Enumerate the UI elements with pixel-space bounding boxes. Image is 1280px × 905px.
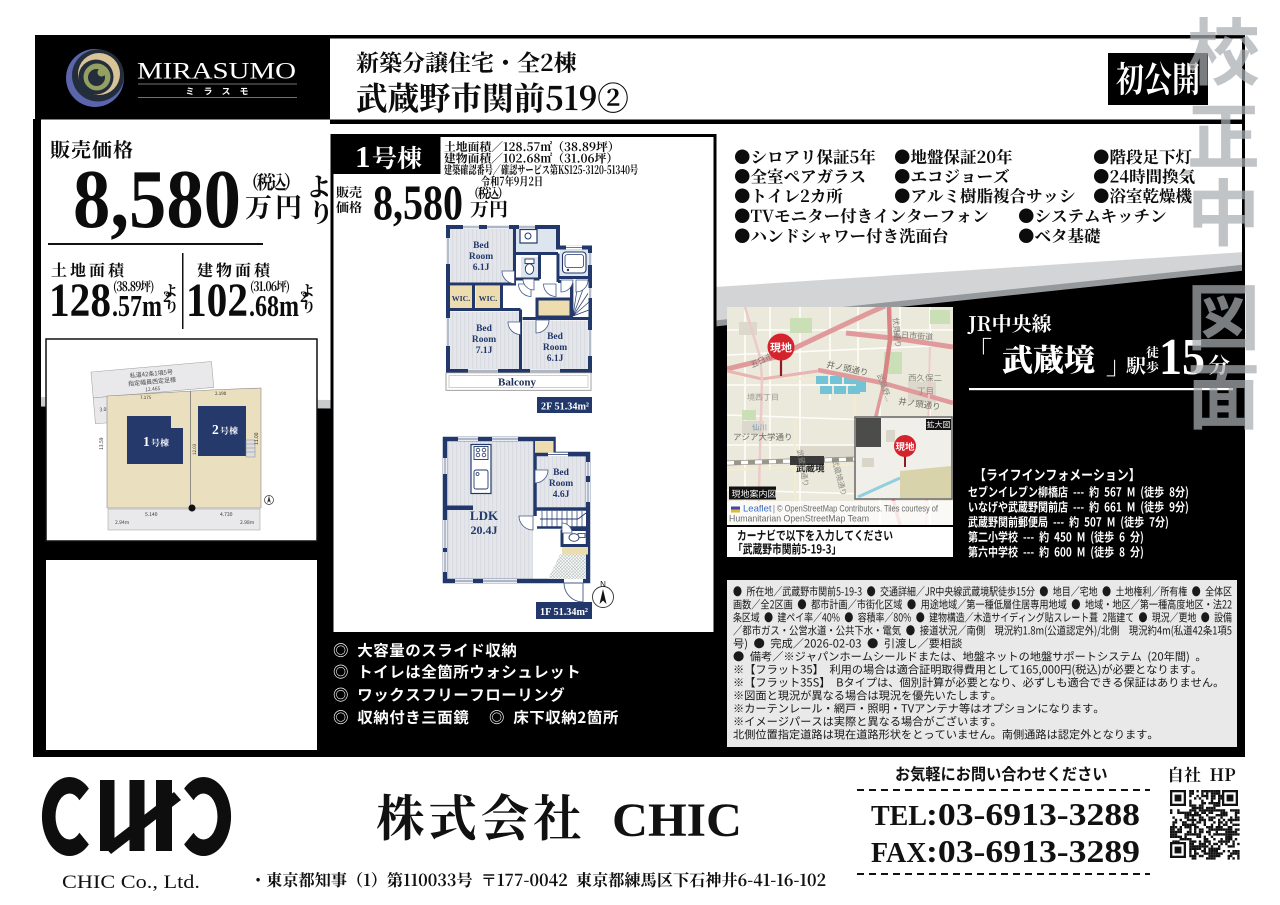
svg-text:Bed: Bed [473, 241, 490, 251]
svg-text:102: 102 [186, 274, 248, 327]
svg-text:8,580: 8,580 [373, 174, 463, 230]
svg-text:Room: Room [469, 252, 493, 262]
svg-text:20.4J: 20.4J [471, 523, 498, 537]
svg-text:WIC.: WIC. [452, 294, 470, 303]
svg-text:LDK: LDK [470, 508, 499, 523]
svg-text:Balcony: Balcony [498, 377, 536, 389]
svg-text:Room: Room [543, 343, 567, 353]
svg-text:Bed: Bed [476, 324, 493, 334]
svg-text:Bed: Bed [553, 468, 570, 478]
svg-text:Humanitarian OpenStreetMap Tea: Humanitarian OpenStreetMap Team [729, 514, 869, 525]
svg-text:Room: Room [549, 479, 573, 489]
svg-text:CHIC: CHIC [612, 794, 742, 847]
svg-text:N: N [600, 580, 606, 589]
svg-text:7.1J: 7.1J [476, 346, 493, 356]
svg-text:8,580: 8,580 [73, 153, 241, 246]
svg-text:1: 1 [355, 139, 371, 174]
svg-text:1F 51.34m²: 1F 51.34m² [540, 606, 589, 618]
svg-text::03-6913-3289: :03-6913-3289 [926, 833, 1140, 869]
svg-text:1: 1 [143, 434, 150, 449]
svg-text:.57m: .57m [112, 288, 162, 323]
svg-text:WIC.: WIC. [479, 294, 497, 303]
svg-text:2F 51.34m²: 2F 51.34m² [541, 401, 590, 413]
svg-text:128: 128 [49, 274, 111, 327]
svg-text:CHIC Co., Ltd.: CHIC Co., Ltd. [62, 872, 200, 893]
svg-text:6.1J: 6.1J [547, 354, 564, 364]
svg-text:.68m: .68m [249, 288, 299, 323]
svg-text:TEL: TEL [871, 801, 927, 832]
svg-text:FAX: FAX [871, 838, 926, 869]
svg-text:MIRASUMO: MIRASUMO [137, 59, 296, 85]
svg-text:Bed: Bed [547, 332, 564, 342]
svg-text:4.6J: 4.6J [553, 490, 570, 500]
svg-text:2: 2 [300, 289, 308, 306]
svg-text::03-6913-3288: :03-6913-3288 [926, 796, 1140, 832]
svg-text:6.1J: 6.1J [473, 263, 490, 273]
svg-text:Room: Room [472, 335, 496, 345]
svg-text:2: 2 [163, 289, 171, 306]
svg-text:2: 2 [212, 422, 219, 437]
